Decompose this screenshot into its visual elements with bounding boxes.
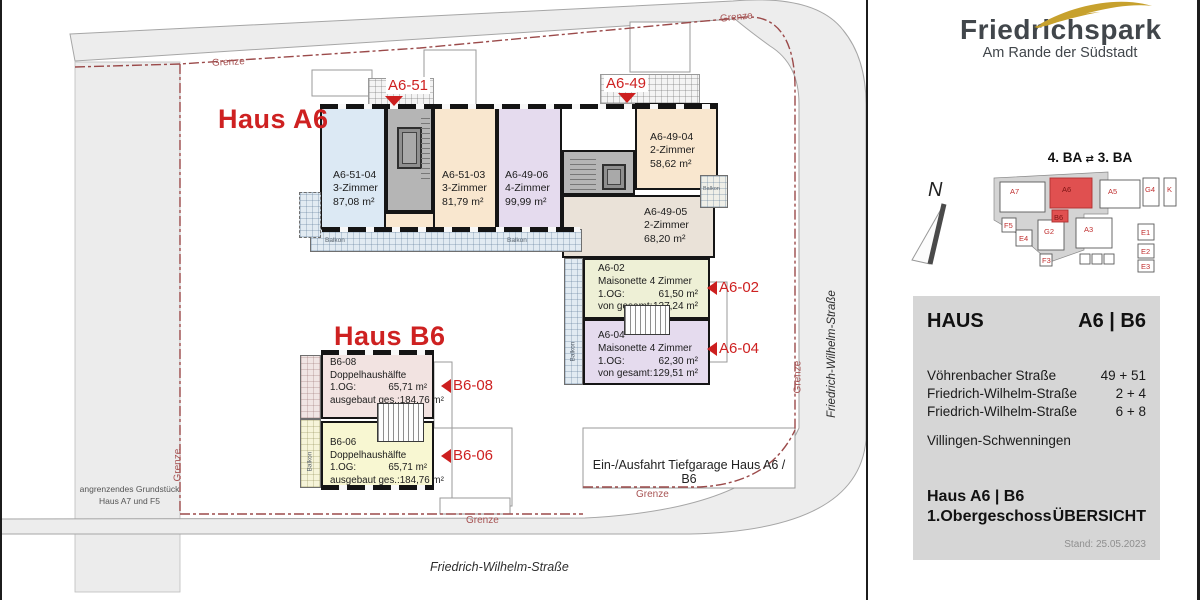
entrance-triangle-icon — [385, 96, 403, 106]
svg-text:E1: E1 — [1141, 228, 1150, 237]
stairs-icon — [421, 117, 430, 179]
apartment-a6-49-06: A6-49-06 4-Zimmer 99,99 m² — [497, 107, 562, 230]
minimap: A7 A6 B6 A5 G4 K F5 E4 G2 A3 F3 E1 E2 E3 — [988, 162, 1188, 280]
entrance-label-a6-51: A6-51 — [386, 77, 430, 94]
address-row: Vöhrenbacher Straße 49 + 51 — [927, 367, 1146, 385]
grenze-label: Grenze — [636, 489, 669, 500]
garage-entry-label: Ein-/Ausfahrt Tiefgarage Haus A6 / B6 — [585, 458, 793, 486]
panel-haus-value: A6 | B6 — [1078, 310, 1146, 333]
apartment-rooms: 2-Zimmer — [644, 219, 689, 232]
logo-swoosh-icon — [1030, 0, 1160, 28]
haus-b6-title: Haus B6 — [334, 321, 446, 352]
stairwell-a6-51 — [386, 107, 433, 212]
address-row: Friedrich-Wilhelm-Straße 2 + 4 — [927, 385, 1146, 403]
apartment-area: 81,79 m² — [442, 196, 487, 209]
grenze-label: Grenze — [212, 56, 245, 69]
svg-text:A6: A6 — [1062, 185, 1071, 194]
svg-text:F3: F3 — [1042, 256, 1051, 265]
apartment-area: 99,99 m² — [505, 196, 550, 209]
panel-view: ÜBERSICHT — [1053, 508, 1146, 526]
site-plan-sheet: A6-51-04 3-Zimmer 87,08 m² A6-51-03 3-Zi… — [0, 0, 1200, 600]
street-label-bottom: Friedrich-Wilhelm-Straße — [430, 560, 569, 574]
balcony-a6-south: Balkon Balkon — [310, 229, 582, 252]
elevator-icon — [397, 127, 422, 169]
window-strip — [321, 485, 434, 490]
marker-triangle-icon — [441, 449, 451, 463]
marker-triangle-icon — [707, 281, 717, 295]
apartment-type: Maisonette 4 Zimmer — [598, 343, 698, 356]
haus-a6-title: Haus A6 — [218, 104, 329, 135]
panel-divider-line — [866, 0, 868, 600]
stairs-icon — [377, 403, 424, 442]
panel-floor: 1.Obergeschoss — [927, 508, 1052, 526]
unit-marker-b6-06: B6-06 — [441, 447, 493, 464]
apartment-id: A6-51-03 — [442, 169, 487, 182]
panel-building: Haus A6 | B6 — [927, 488, 1146, 506]
svg-text:G2: G2 — [1044, 227, 1054, 236]
street-label-right: Friedrich-Wilhelm-Straße — [826, 279, 838, 429]
apartment-a6-49-05: A6-49-05 2-Zimmer 68,20 m² — [562, 195, 715, 258]
elevator-icon — [602, 164, 626, 190]
apartment-a6-51-03: A6-51-03 3-Zimmer 81,79 m² — [433, 107, 497, 230]
balcony-a6-49-04: Balkon — [700, 175, 728, 208]
stairwell-a6-49 — [562, 150, 635, 195]
unit-marker-a6-04: A6-04 — [707, 340, 759, 357]
marker-triangle-icon — [707, 342, 717, 356]
apartment-area: 87,08 m² — [333, 196, 378, 209]
entrance-label-a6-49: A6-49 — [604, 75, 648, 92]
apartment-rooms: 3-Zimmer — [442, 182, 487, 195]
apartment-id: B6-08 — [330, 357, 427, 370]
stairs-icon — [624, 305, 670, 335]
balcony-b6-08 — [300, 355, 321, 419]
svg-text:E4: E4 — [1019, 234, 1028, 243]
apartment-type: Maisonette 4 Zimmer — [598, 276, 698, 289]
info-panel: HAUS A6 | B6 Vöhrenbacher Straße 49 + 51… — [913, 296, 1160, 560]
window-strip — [320, 104, 718, 109]
panel-haus-label: HAUS — [927, 310, 984, 333]
left-frame-line — [0, 0, 2, 600]
apartment-id: A6-02 — [598, 263, 698, 276]
unit-marker-b6-08: B6-08 — [441, 377, 493, 394]
grenze-label: Grenze — [173, 442, 184, 482]
apartment-id: A6-49-06 — [505, 169, 550, 182]
apartment-area: 68,20 m² — [644, 233, 689, 246]
address-row: Friedrich-Wilhelm-Straße 6 + 8 — [927, 403, 1146, 421]
svg-text:N: N — [928, 179, 943, 201]
apartment-id: A6-49-05 — [644, 206, 689, 219]
balcony-label: Balkon — [307, 436, 314, 472]
svg-text:G4: G4 — [1145, 185, 1155, 194]
svg-text:E2: E2 — [1141, 247, 1150, 256]
adjacent-parcel-area — [75, 62, 180, 592]
stairs-icon — [570, 158, 596, 190]
entrance-triangle-icon — [618, 93, 636, 103]
north-arrow-icon: N — [900, 178, 980, 273]
balcony-label: Balkon — [570, 326, 577, 362]
panel-date: Stand: 25.05.2023 — [1064, 539, 1146, 550]
balcony-a6-west — [299, 192, 321, 238]
apartment-a6-51-04: A6-51-04 3-Zimmer 87,08 m² — [320, 107, 386, 230]
panel-city: Villingen-Schwenningen — [927, 433, 1146, 448]
logo-subtitle: Am Rande der Südstadt — [960, 45, 1160, 61]
svg-text:B6: B6 — [1054, 213, 1063, 222]
adjacent-parcel-label: angrenzendes Grundstück Haus A7 und F5 — [72, 484, 187, 508]
window-strip — [322, 227, 580, 232]
apartment-rooms: 2-Zimmer — [650, 144, 695, 157]
grenze-label: Grenze — [793, 354, 804, 394]
apartment-area: 58,62 m² — [650, 158, 695, 171]
svg-text:K: K — [1167, 185, 1172, 194]
apartment-type: Doppelhaushälfte — [330, 370, 427, 383]
svg-text:E3: E3 — [1141, 262, 1150, 271]
apartment-id: A6-51-04 — [333, 169, 378, 182]
apartment-type: Doppelhaushälfte — [330, 450, 427, 463]
grenze-label: Grenze — [466, 515, 499, 526]
apartment-id: A6-49-04 — [650, 131, 695, 144]
apartment-rooms: 4-Zimmer — [505, 182, 550, 195]
svg-text:F5: F5 — [1004, 221, 1013, 230]
svg-text:A7: A7 — [1010, 187, 1019, 196]
svg-text:A5: A5 — [1108, 187, 1117, 196]
svg-text:A3: A3 — [1084, 225, 1093, 234]
balcony-maisonette — [564, 258, 583, 385]
apartment-rooms: 3-Zimmer — [333, 182, 378, 195]
marker-triangle-icon — [441, 379, 451, 393]
unit-marker-a6-02: A6-02 — [707, 279, 759, 296]
